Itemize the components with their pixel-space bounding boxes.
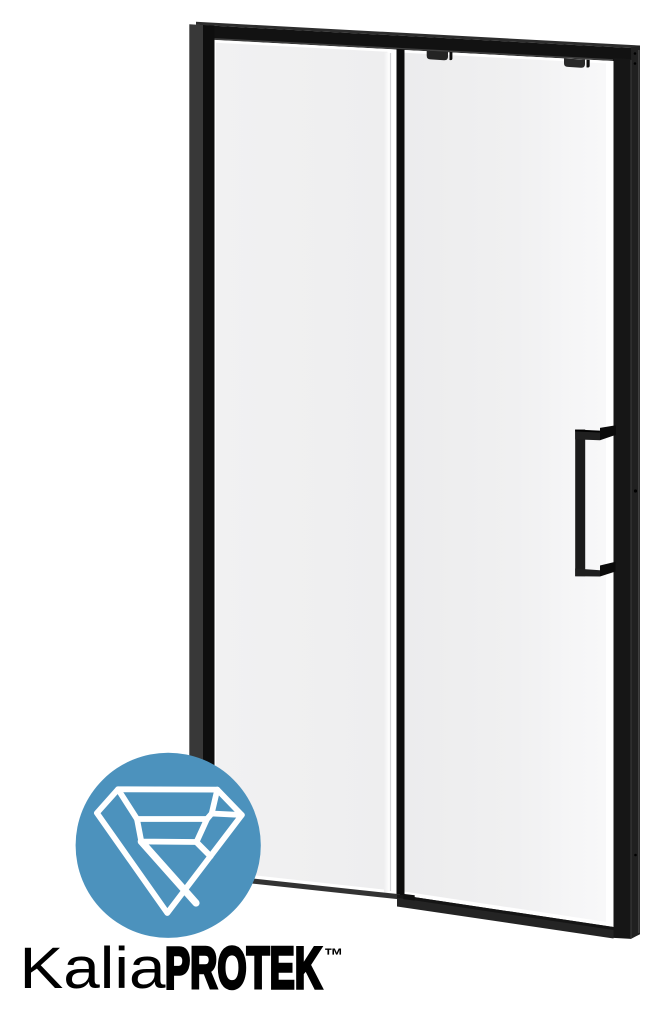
svg-text:Kalia: Kalia [20,936,167,1001]
svg-text:™: ™ [324,945,344,967]
svg-text:PROTEK: PROTEK [165,936,322,1001]
